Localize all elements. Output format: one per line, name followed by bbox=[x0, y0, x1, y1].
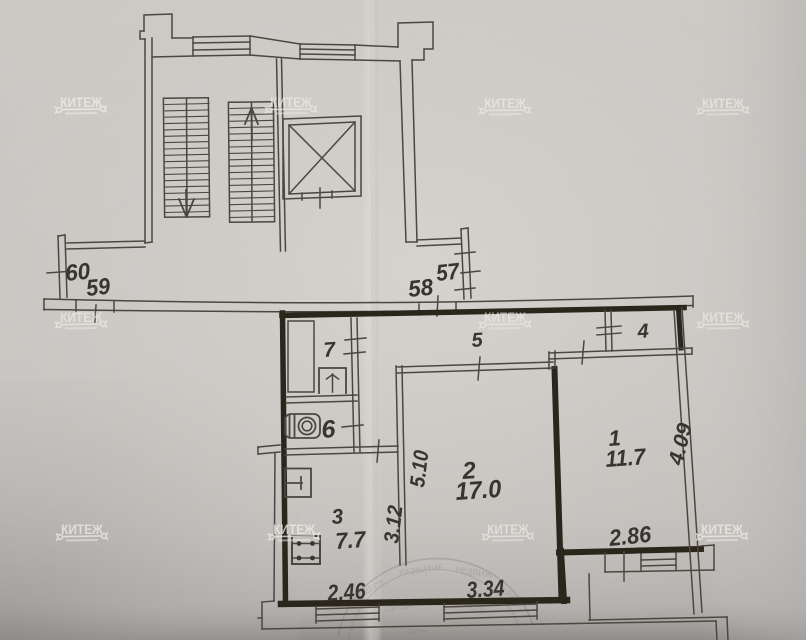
svg-text:58: 58 bbox=[407, 273, 435, 301]
svg-text:ОГРН: ОГРН bbox=[408, 627, 428, 636]
svg-text:3.34: 3.34 bbox=[466, 574, 506, 603]
svg-text:17.0: 17.0 bbox=[454, 475, 502, 506]
svg-text:11.7: 11.7 bbox=[605, 443, 648, 472]
svg-text:5.10: 5.10 bbox=[406, 449, 433, 489]
svg-text:3: 3 bbox=[331, 505, 345, 529]
svg-text:57: 57 bbox=[435, 258, 462, 286]
svg-text:2.46: 2.46 bbox=[326, 577, 367, 606]
svg-text:59: 59 bbox=[85, 273, 112, 301]
svg-text:2.86: 2.86 bbox=[607, 521, 653, 551]
svg-text:4: 4 bbox=[636, 320, 650, 343]
svg-text:3.12: 3.12 bbox=[380, 504, 407, 545]
svg-text:7.7: 7.7 bbox=[335, 526, 368, 554]
